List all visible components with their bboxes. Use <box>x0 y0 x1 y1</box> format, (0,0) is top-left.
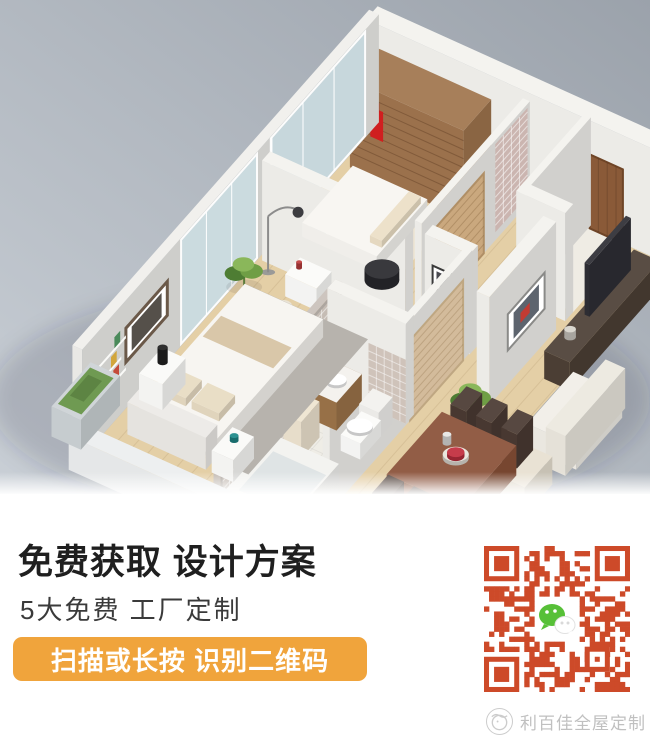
qr-code[interactable] <box>484 546 630 692</box>
qr-code-svg[interactable] <box>484 546 630 692</box>
sideboard <box>486 470 525 494</box>
logo-mark-icon <box>488 710 511 733</box>
promo-headline: 免费获取 设计方案 <box>18 534 317 585</box>
floorplan-svg <box>0 0 650 494</box>
scan-banner: 扫描或长按 识别二维码 <box>13 637 367 681</box>
dining-table <box>387 474 461 494</box>
libaijia-logo <box>486 708 513 735</box>
promo-subheadline: 5大免费 工厂定制 <box>20 590 242 627</box>
tv-panel <box>585 263 590 317</box>
dining-chair-4 <box>372 493 388 494</box>
brand-name: 利百佳全屋定制 <box>520 709 646 734</box>
floorplan-render <box>0 0 650 494</box>
scan-banner-label: 扫描或长按 识别二维码 <box>51 641 329 678</box>
bathtub <box>226 489 291 494</box>
brand-footer: 利百佳全屋定制 <box>486 708 646 735</box>
